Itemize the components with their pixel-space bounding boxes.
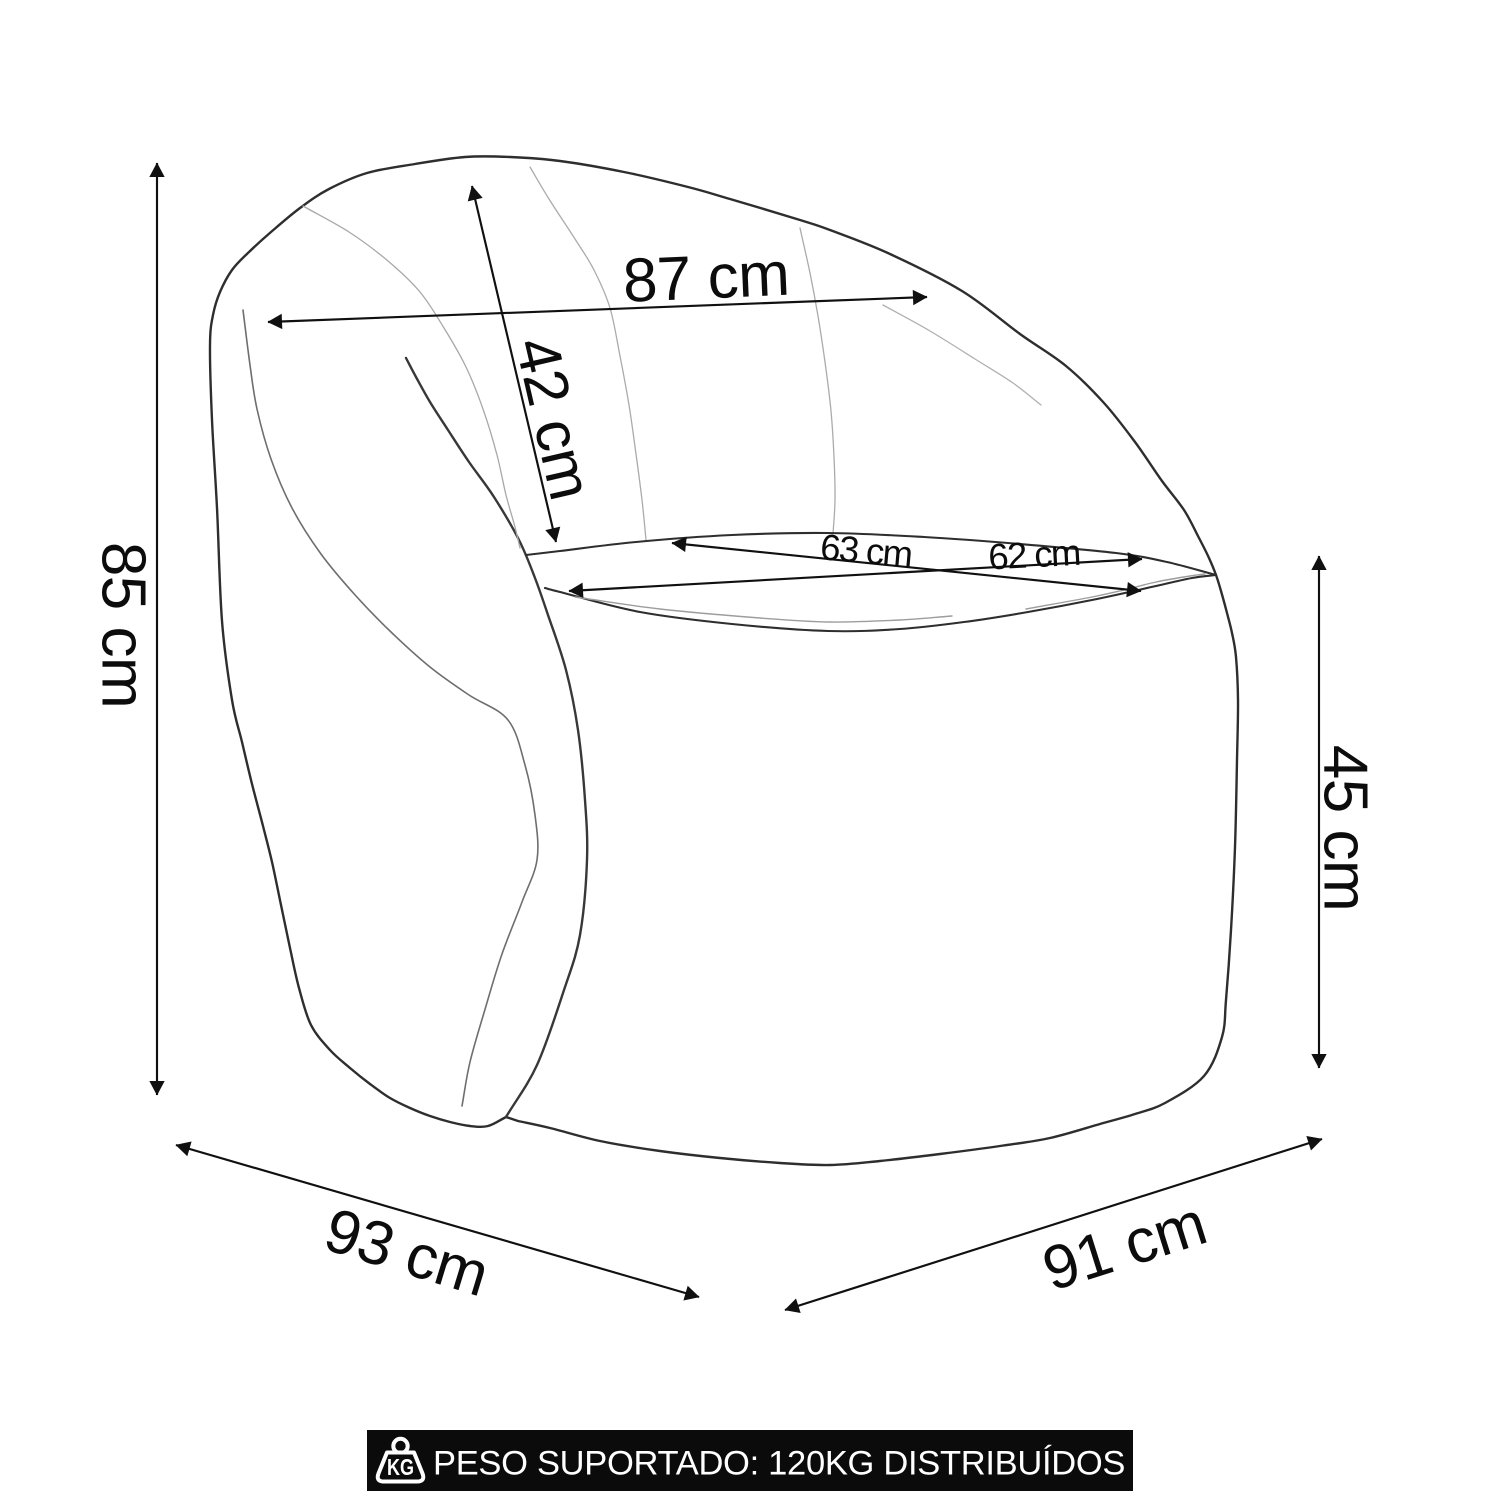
svg-text:63 cm: 63 cm xyxy=(819,526,914,575)
svg-text:87 cm: 87 cm xyxy=(621,240,790,316)
svg-text:PESO SUPORTADO: 120KG DISTRIBU: PESO SUPORTADO: 120KG DISTRIBUÍDOS xyxy=(433,1444,1125,1483)
svg-text:45 cm: 45 cm xyxy=(1311,745,1380,911)
svg-text:62 cm: 62 cm xyxy=(987,532,1080,578)
svg-text:KG: KG xyxy=(387,1454,414,1480)
svg-text:85 cm: 85 cm xyxy=(89,542,158,708)
